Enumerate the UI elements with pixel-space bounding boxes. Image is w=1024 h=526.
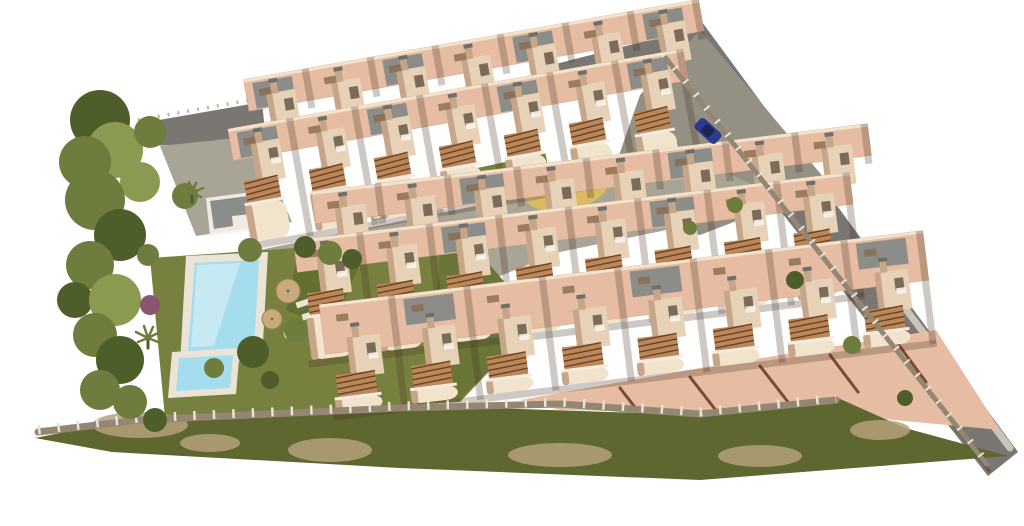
palm-tree-icon	[136, 326, 160, 348]
dry-scrub-patch	[288, 438, 372, 462]
tree-canopy	[140, 295, 160, 315]
render-canvas	[0, 0, 1024, 526]
tree-canopy	[57, 282, 93, 318]
tree-canopy	[204, 358, 224, 378]
tree-canopy	[120, 162, 160, 202]
tree-canopy	[294, 236, 316, 258]
dry-scrub-patch	[718, 445, 802, 467]
architectural-render	[0, 0, 1024, 526]
tree-canopy	[342, 249, 362, 269]
tree-canopy	[113, 385, 147, 419]
dry-scrub-patch	[850, 420, 910, 440]
tree-canopy	[284, 318, 308, 342]
tree-canopy	[238, 238, 262, 262]
tree-canopy	[318, 241, 342, 265]
tree-canopy	[261, 371, 279, 389]
dry-scrub-patch	[508, 443, 612, 467]
tree-canopy	[683, 221, 697, 235]
tree-canopy	[237, 336, 269, 368]
tree-canopy	[897, 390, 913, 406]
tree-canopy	[727, 197, 743, 213]
tree-canopy	[137, 244, 159, 266]
tree-canopy	[134, 116, 166, 148]
dry-scrub-patch	[180, 434, 240, 452]
kids-pool-water	[176, 355, 233, 391]
tree-canopy	[843, 336, 861, 354]
tree-canopy	[786, 271, 804, 289]
tree-canopy	[143, 408, 167, 432]
